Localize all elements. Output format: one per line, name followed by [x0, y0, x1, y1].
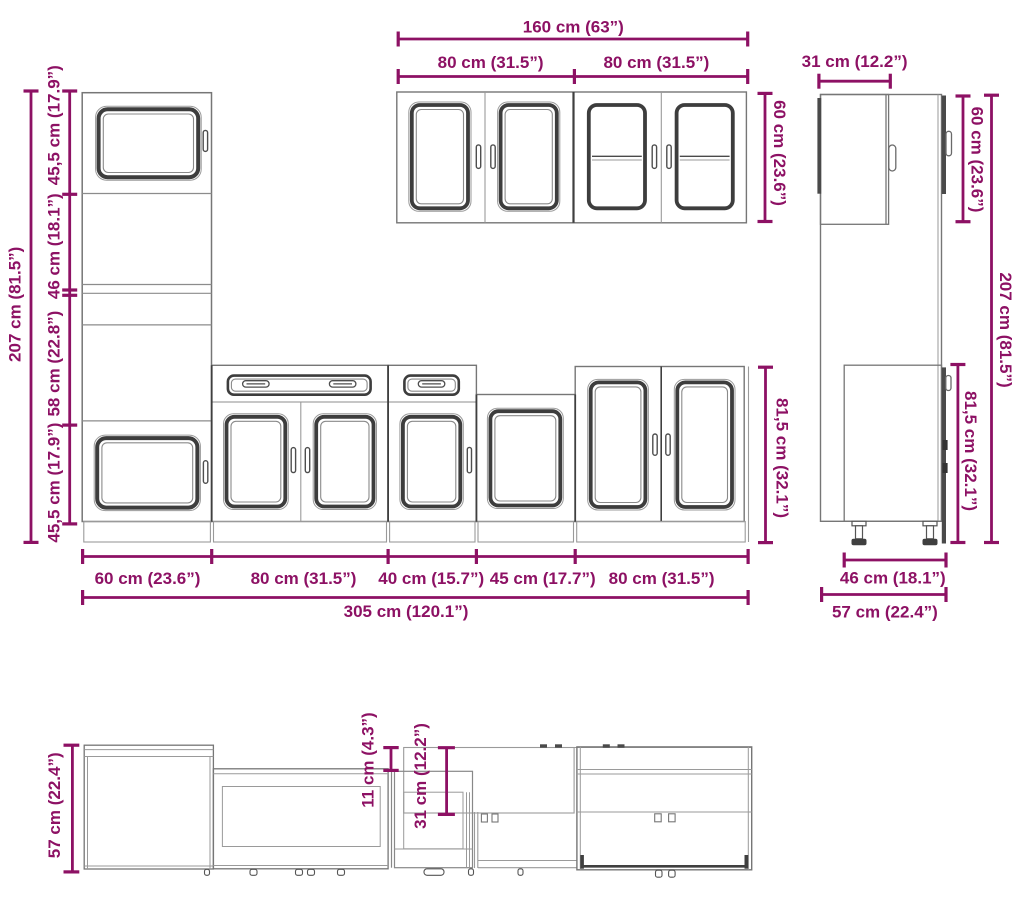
- svg-text:11 cm (4.3”): 11 cm (4.3”): [359, 712, 378, 807]
- svg-text:46 cm (18.1”): 46 cm (18.1”): [45, 193, 64, 299]
- svg-text:46 cm (18.1”): 46 cm (18.1”): [840, 569, 946, 588]
- svg-text:80 cm (31.5”): 80 cm (31.5”): [438, 53, 544, 72]
- svg-text:80 cm (31.5”): 80 cm (31.5”): [603, 53, 709, 72]
- svg-text:57 cm (22.4”): 57 cm (22.4”): [832, 603, 938, 622]
- svg-text:58 cm (22.8”): 58 cm (22.8”): [45, 311, 64, 417]
- svg-text:60 cm (23.6”): 60 cm (23.6”): [95, 569, 201, 588]
- svg-text:160 cm (63”): 160 cm (63”): [523, 18, 624, 37]
- svg-text:45,5 cm (17.9”): 45,5 cm (17.9”): [45, 423, 64, 543]
- svg-text:207 cm (81.5”): 207 cm (81.5”): [6, 247, 25, 362]
- svg-text:81,5 cm (32.1”): 81,5 cm (32.1”): [961, 391, 980, 511]
- svg-text:40 cm (15.7”): 40 cm (15.7”): [378, 569, 484, 588]
- svg-text:60 cm (23.6”): 60 cm (23.6”): [770, 100, 789, 206]
- svg-text:45,5 cm (17.9”): 45,5 cm (17.9”): [45, 65, 64, 185]
- svg-text:57 cm (22.4”): 57 cm (22.4”): [45, 752, 64, 858]
- svg-text:81,5 cm (32.1”): 81,5 cm (32.1”): [773, 398, 792, 518]
- svg-text:31 cm (12.2”): 31 cm (12.2”): [802, 52, 908, 71]
- svg-text:207 cm (81.5”): 207 cm (81.5”): [996, 272, 1015, 387]
- svg-text:60 cm (23.6”): 60 cm (23.6”): [967, 107, 986, 213]
- svg-text:31 cm (12.2”): 31 cm (12.2”): [411, 723, 430, 829]
- svg-text:305 cm (120.1”): 305 cm (120.1”): [344, 602, 469, 621]
- svg-text:80 cm (31.5”): 80 cm (31.5”): [609, 569, 715, 588]
- svg-text:45 cm (17.7”): 45 cm (17.7”): [490, 569, 596, 588]
- svg-text:80 cm (31.5”): 80 cm (31.5”): [251, 569, 357, 588]
